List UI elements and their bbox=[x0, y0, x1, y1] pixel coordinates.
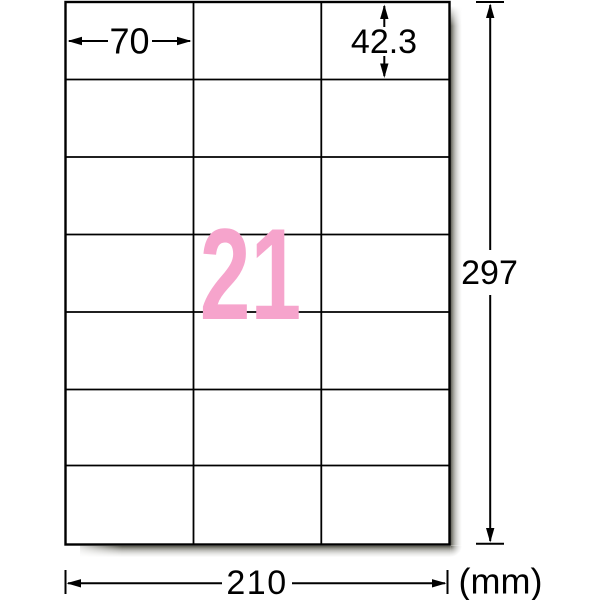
svg-text:42.3: 42.3 bbox=[351, 23, 417, 61]
svg-text:21: 21 bbox=[200, 201, 302, 347]
svg-text:210: 210 bbox=[226, 564, 287, 600]
svg-text:70: 70 bbox=[109, 21, 149, 62]
svg-text:297: 297 bbox=[461, 254, 518, 292]
svg-text:(mm): (mm) bbox=[459, 561, 543, 600]
